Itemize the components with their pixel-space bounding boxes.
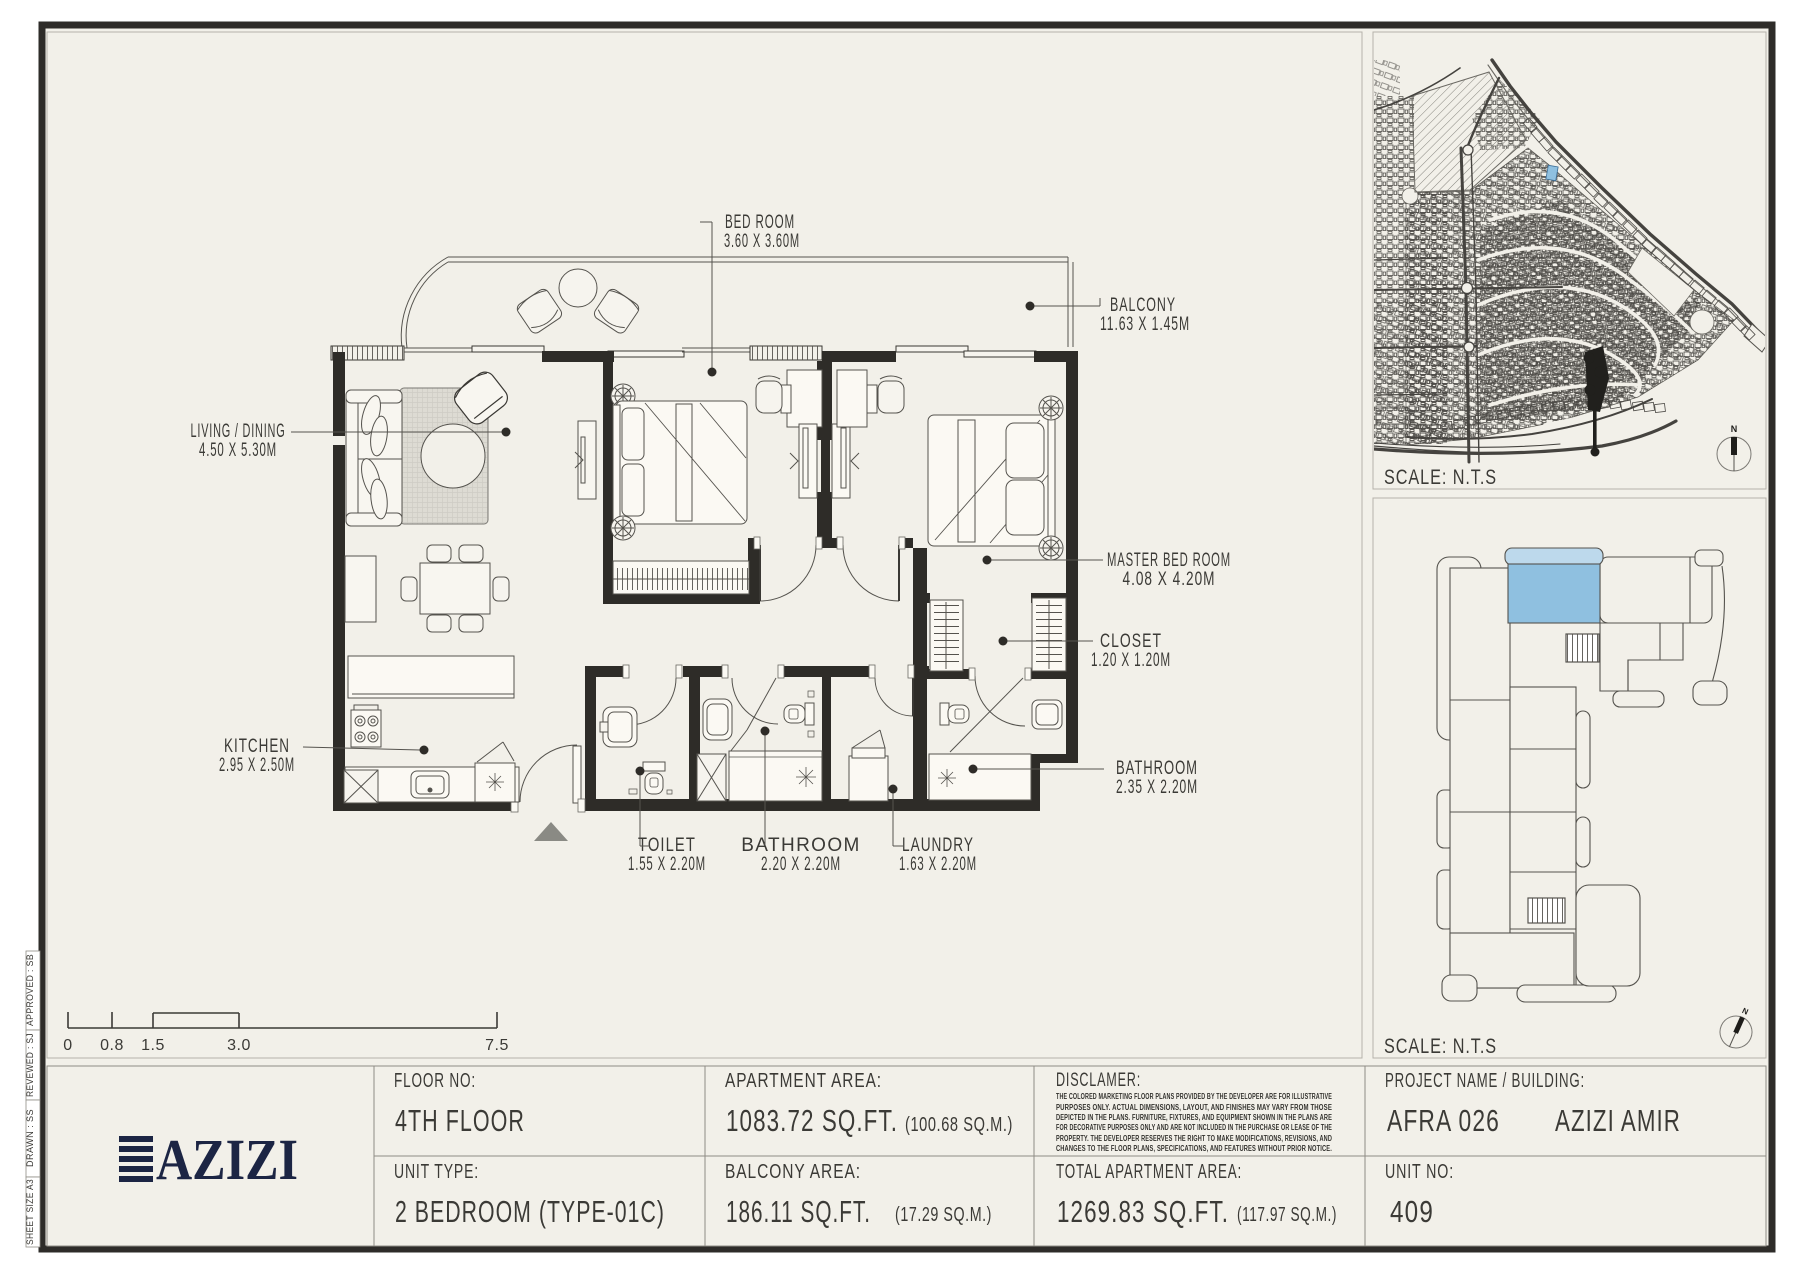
svg-text:1083.72 SQ.FT.: 1083.72 SQ.FT. [726,1103,898,1138]
svg-text:PROPERTY. THE DEVELOPER RESERV: PROPERTY. THE DEVELOPER RESERVES THE RIG… [1056,1133,1332,1143]
svg-text:409: 409 [1390,1194,1434,1229]
svg-text:BED ROOM: BED ROOM [725,212,795,233]
svg-text:BALCONY: BALCONY [1110,295,1176,316]
svg-text:(117.97 SQ.M.): (117.97 SQ.M.) [1237,1204,1337,1226]
svg-text:THE COLORED MARKETING FLOOR PL: THE COLORED MARKETING FLOOR PLANS PROVID… [1056,1091,1332,1101]
svg-text:DISCLAMER:: DISCLAMER: [1056,1070,1141,1091]
svg-text:11.63 X 1.45M: 11.63 X 1.45M [1100,314,1190,335]
svg-text:4.50 X 5.30M: 4.50 X 5.30M [199,440,277,461]
svg-text:1269.83 SQ.FT.: 1269.83 SQ.FT. [1057,1194,1229,1229]
svg-text:SCALE: N.T.S: SCALE: N.T.S [1384,1035,1497,1058]
svg-text:UNIT TYPE:: UNIT TYPE: [394,1161,479,1183]
svg-text:SHEET SIZE A3: SHEET SIZE A3 [25,1179,35,1245]
svg-text:BATHROOM: BATHROOM [1116,758,1198,779]
svg-text:0.8: 0.8 [100,1037,124,1054]
svg-text:APPROVED : SB: APPROVED : SB [25,954,35,1026]
svg-text:1.20 X 1.20M: 1.20 X 1.20M [1091,650,1171,671]
svg-text:2.20 X 2.20M: 2.20 X 2.20M [761,854,841,875]
svg-text:LIVING / DINING: LIVING / DINING [191,421,286,442]
svg-text:AFRA 026: AFRA 026 [1387,1103,1500,1138]
svg-text:0: 0 [63,1037,72,1054]
svg-text:2.35 X 2.20M: 2.35 X 2.20M [1116,777,1198,798]
svg-text:FOR DECORATIVE PURPOSES ONLY A: FOR DECORATIVE PURPOSES ONLY AND ARE NOT… [1056,1122,1332,1132]
svg-text:DEPICTED IN THE PLANS. FURNITU: DEPICTED IN THE PLANS. FURNITURE, FIXTUR… [1056,1112,1332,1122]
svg-text:CLOSET: CLOSET [1100,631,1162,652]
svg-text:DRAWN : SS: DRAWN : SS [25,1109,35,1167]
svg-text:1.63 X 2.20M: 1.63 X 2.20M [899,854,977,875]
svg-text:BATHROOM: BATHROOM [741,835,861,856]
svg-text:REVEWED : SJ: REVEWED : SJ [25,1033,35,1097]
svg-text:TOTAL APARTMENT AREA:: TOTAL APARTMENT AREA: [1056,1161,1242,1183]
svg-text:APARTMENT AREA:: APARTMENT AREA: [725,1070,882,1092]
svg-text:FLOOR NO:: FLOOR NO: [394,1070,476,1092]
svg-text:BALCONY AREA:: BALCONY AREA: [725,1161,861,1183]
svg-text:SCALE: N.T.S: SCALE: N.T.S [1384,466,1497,489]
svg-text:4TH FLOOR: 4TH FLOOR [395,1103,525,1138]
svg-text:AZIZI: AZIZI [156,1127,298,1192]
svg-text:CHANGES TO THE FLOOR PLANS, SP: CHANGES TO THE FLOOR PLANS, SPECIFICATIO… [1056,1143,1332,1153]
svg-text:186.11 SQ.FT.: 186.11 SQ.FT. [726,1194,871,1229]
svg-text:LAUNDRY: LAUNDRY [902,835,974,856]
svg-text:N: N [1731,424,1738,434]
svg-text:3.0: 3.0 [227,1037,251,1054]
svg-text:(17.29 SQ.M.): (17.29 SQ.M.) [895,1204,992,1226]
svg-text:7.5: 7.5 [485,1037,509,1054]
svg-text:1.55 X 2.20M: 1.55 X 2.20M [628,854,706,875]
svg-text:PROJECT NAME / BUILDING:: PROJECT NAME / BUILDING: [1385,1070,1585,1092]
svg-text:3.60 X 3.60M: 3.60 X 3.60M [724,231,800,252]
svg-text:AZIZI AMIR: AZIZI AMIR [1555,1103,1681,1138]
svg-text:1.5: 1.5 [141,1037,165,1054]
svg-text:2.95 X 2.50M: 2.95 X 2.50M [219,755,295,776]
svg-text:KITCHEN: KITCHEN [224,736,290,757]
svg-text:(100.68 SQ.M.): (100.68 SQ.M.) [905,1114,1013,1136]
svg-text:UNIT NO:: UNIT NO: [1385,1161,1454,1183]
svg-text:4.08 X 4.20M: 4.08 X 4.20M [1123,569,1216,590]
svg-text:2 BEDROOM (TYPE-01C): 2 BEDROOM (TYPE-01C) [395,1194,665,1229]
svg-text:MASTER BED ROOM: MASTER BED ROOM [1107,550,1231,571]
svg-text:PURPOSES ONLY. ACTUAL DIMENSIO: PURPOSES ONLY. ACTUAL DIMENSIONS, LAYOUT… [1056,1102,1332,1112]
